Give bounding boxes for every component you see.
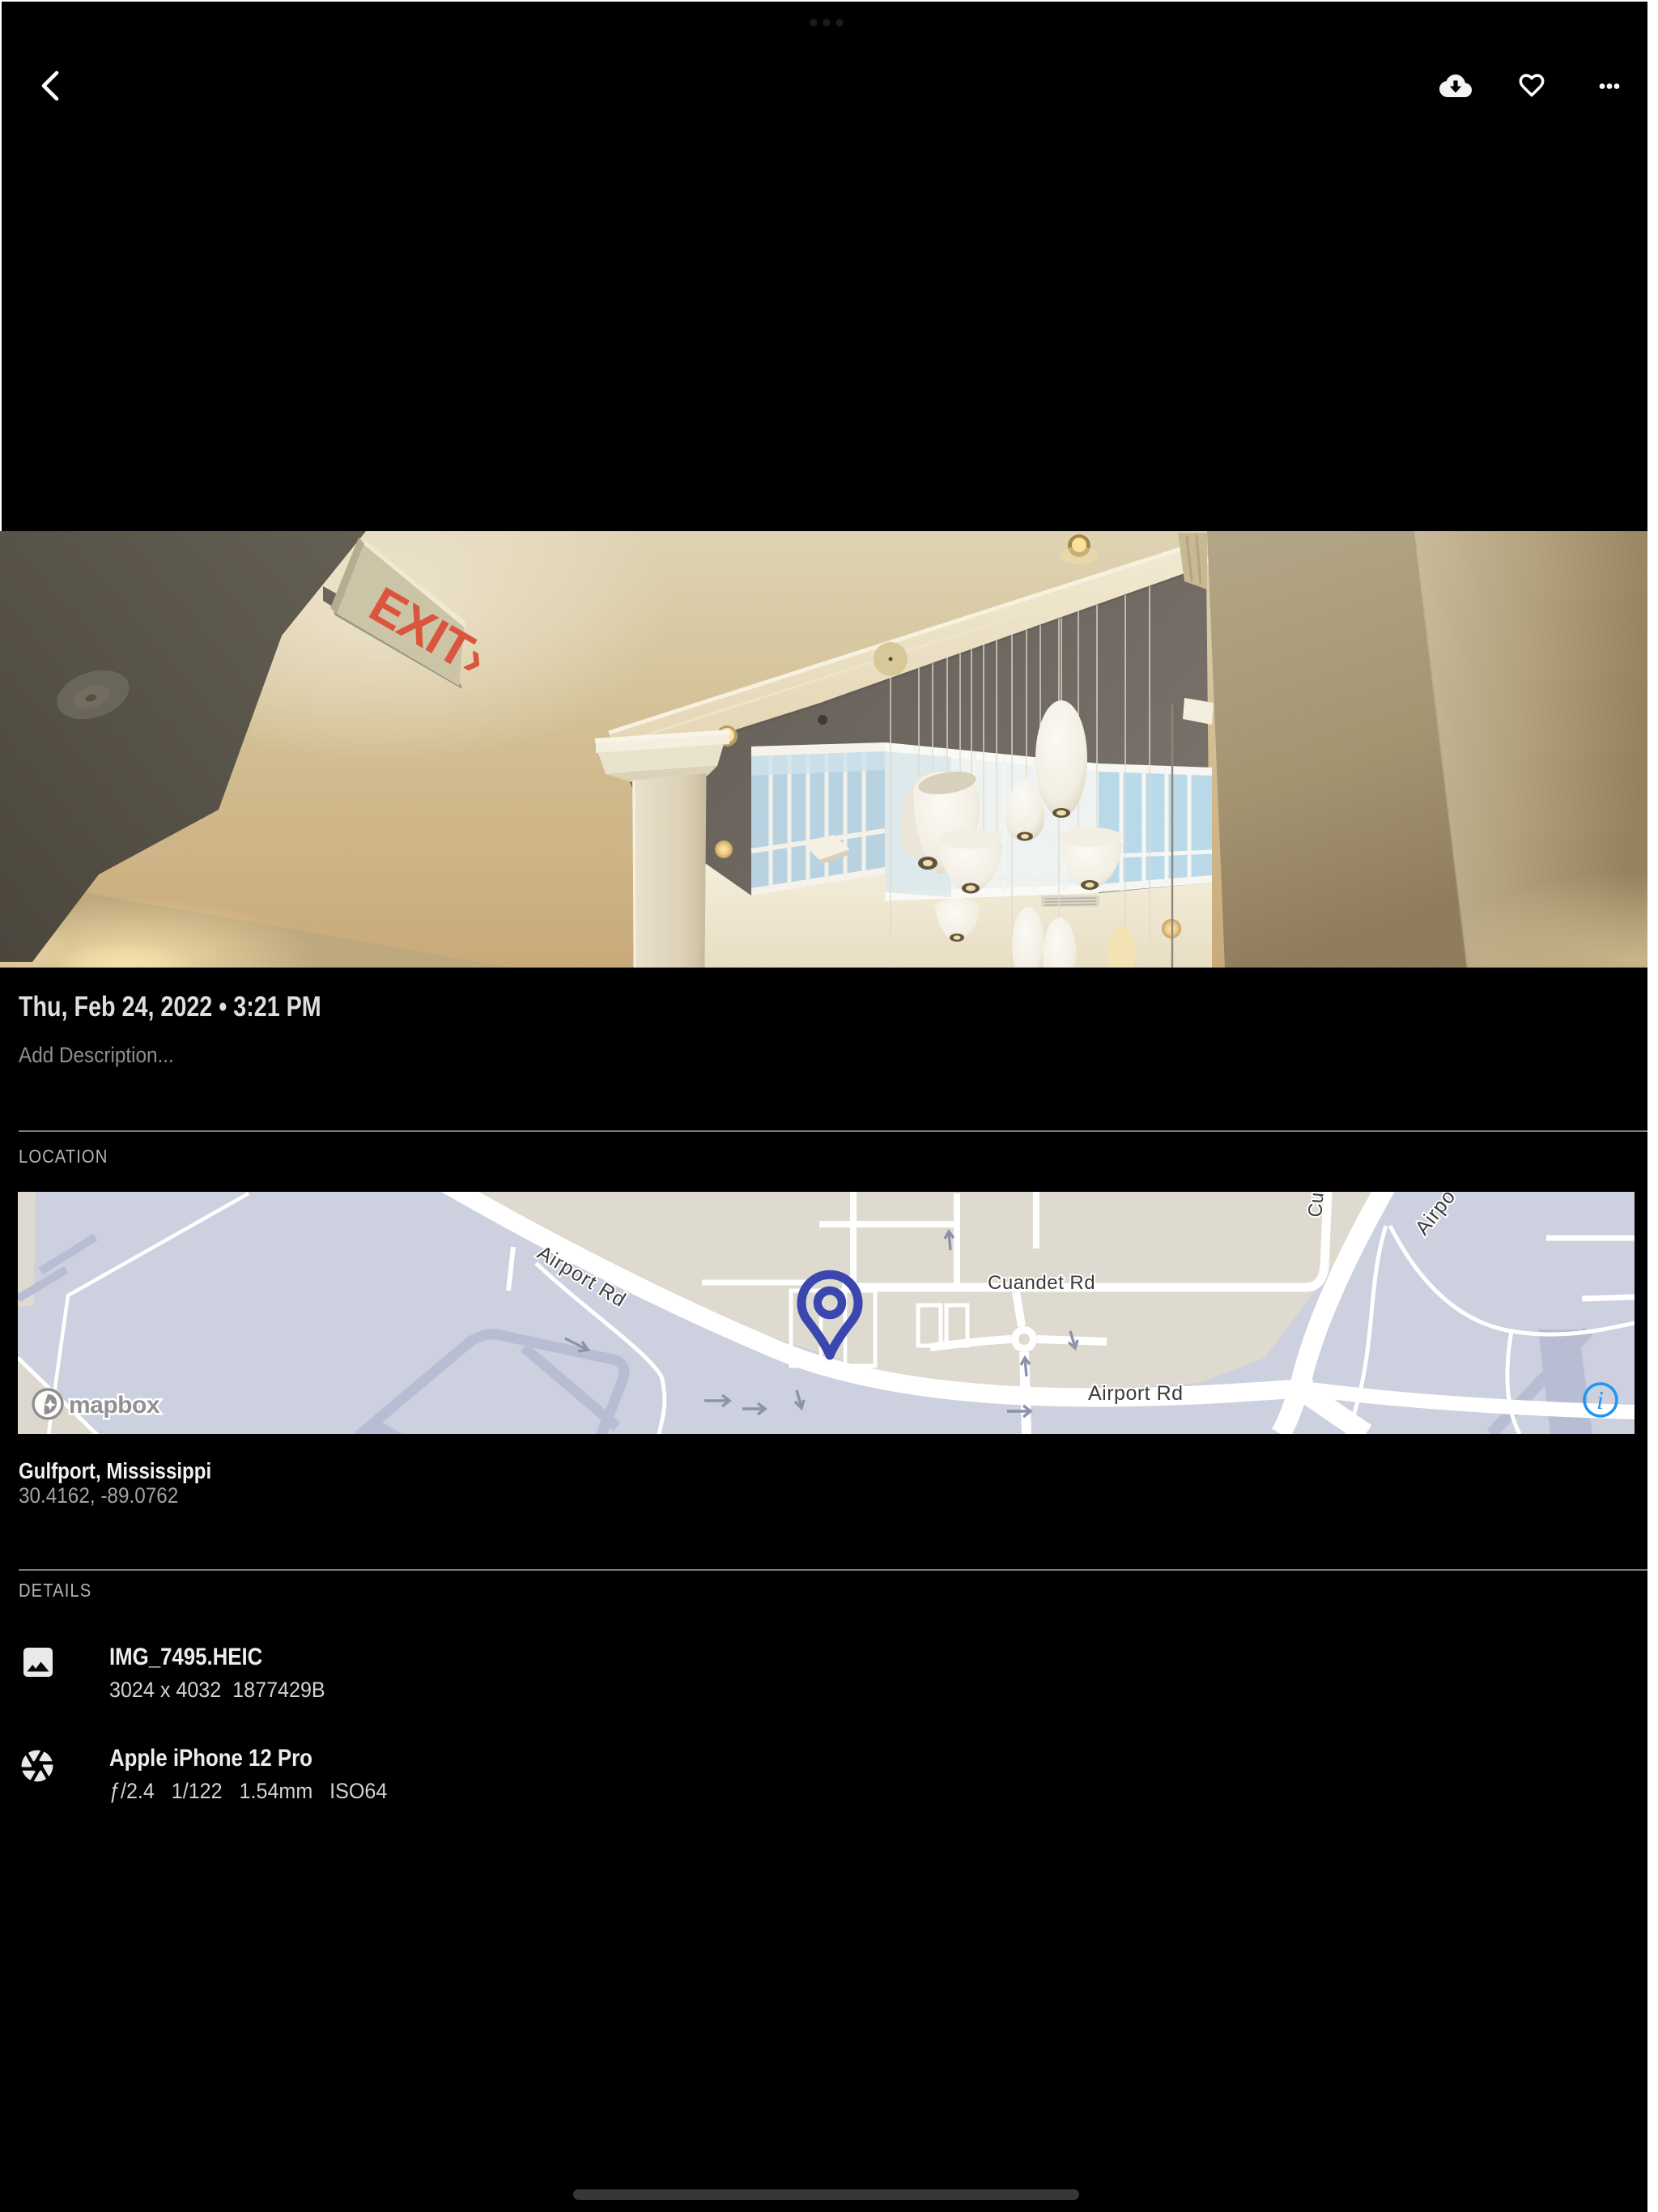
svg-text:Cuandet Rd: Cuandet Rd (988, 1272, 1095, 1294)
svg-text:Cu: Cu (1304, 1192, 1329, 1219)
svg-text:mapbox: mapbox (69, 1392, 160, 1419)
svg-text:i: i (1596, 1385, 1604, 1414)
svg-text:Airport Rd: Airport Rd (1088, 1382, 1184, 1405)
